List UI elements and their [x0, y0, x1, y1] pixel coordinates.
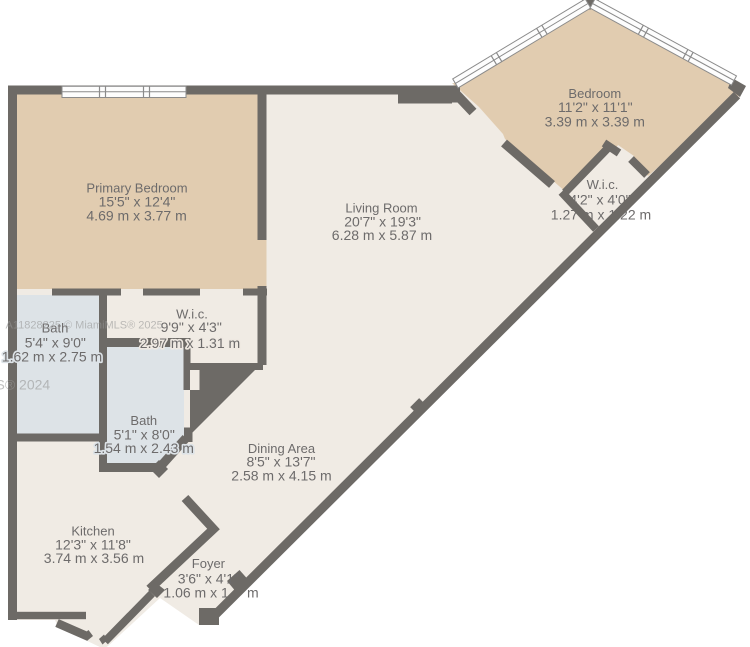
svg-text:1.62 m x 2.75 m: 1.62 m x 2.75 m: [2, 349, 102, 365]
svg-text:A11828225 © MiamiMLS® 2025: A11828225 © MiamiMLS® 2025: [6, 320, 163, 332]
svg-text:1.27 m x 1.22 m: 1.27 m x 1.22 m: [551, 207, 651, 223]
svg-text:W.i.c.: W.i.c.: [587, 177, 619, 192]
svg-text:1.06 m x 1: 1.06 m x 1: [163, 585, 229, 601]
svg-text:3.74 m x 3.56 m: 3.74 m x 3.56 m: [44, 550, 144, 566]
svg-text:6.28 m x 5.87 m: 6.28 m x 5.87 m: [332, 227, 432, 243]
svg-text:9'9" x 4'3": 9'9" x 4'3": [161, 319, 222, 335]
svg-text:3'6" x 4'1": 3'6" x 4'1": [178, 571, 239, 587]
svg-text:2.58 m x 4.15 m: 2.58 m x 4.15 m: [231, 468, 331, 484]
svg-text:Foyer: Foyer: [192, 556, 226, 571]
svg-text:3.39 m x 3.39 m: 3.39 m x 3.39 m: [545, 114, 645, 130]
svg-text:1.54 m x 2.43 m: 1.54 m x 2.43 m: [94, 440, 194, 456]
svg-text:4.69 m x 3.77 m: 4.69 m x 3.77 m: [86, 208, 186, 224]
svg-text:2.97 m x 1.31 m: 2.97 m x 1.31 m: [140, 335, 240, 351]
svg-text:S® 2024: S® 2024: [0, 377, 50, 393]
